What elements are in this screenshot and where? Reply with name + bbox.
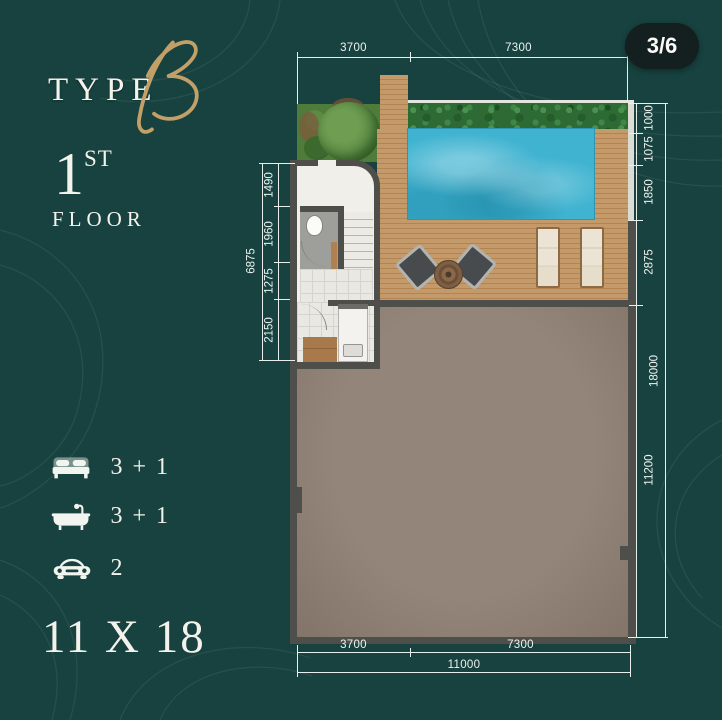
dim-tick (629, 220, 643, 221)
extension-line (630, 645, 631, 676)
dim-label-top-left: 3700 (297, 43, 410, 54)
wall-pillar (620, 546, 630, 560)
dim-tick (274, 262, 290, 263)
floorplan-page: 3700 7300 1000 1075 1850 2875 11200 1800… (0, 0, 722, 720)
dimension-line (297, 652, 631, 653)
extension-line (297, 645, 298, 676)
dimension-line (636, 103, 637, 637)
extension-line (297, 58, 298, 104)
dim-label-right-total: 18000 (650, 355, 661, 387)
dim-tick (629, 165, 643, 166)
type-letter-monogram (112, 32, 217, 142)
dim-label-bottom-left: 3700 (297, 640, 410, 651)
round-table (434, 260, 463, 289)
staircase (344, 212, 373, 269)
deck-floor-divider-wall (374, 300, 637, 307)
maid-room-wall (290, 362, 380, 369)
page-counter-text: 3/6 (647, 33, 678, 58)
bed-icon (50, 452, 92, 482)
dim-label-bottom-total: 11000 (297, 660, 631, 671)
plot-size-label: 11 X 18 (42, 610, 206, 664)
floor-word: FLOOR (52, 207, 146, 232)
dim-tick (259, 360, 295, 361)
dim-label-right-seg: 2875 (645, 249, 656, 275)
car-icon (50, 553, 94, 583)
dim-tick (274, 299, 290, 300)
maid-room-wall (374, 300, 380, 368)
hedge-row (408, 103, 628, 130)
parking-count: 2 (110, 555, 124, 581)
dim-label-top-right: 7300 (410, 43, 627, 54)
dim-tick (628, 637, 668, 638)
hallway-floor (300, 269, 373, 302)
dim-label-bottom-right: 7300 (410, 640, 631, 651)
floor-ordinal: ST (84, 146, 113, 171)
dim-label-left-seg: 2150 (265, 317, 276, 343)
page-counter-badge: 3/6 (625, 23, 699, 69)
dim-tick (259, 163, 295, 164)
entrance-walkway (380, 75, 408, 131)
dim-label-right-seg: 11200 (645, 454, 656, 485)
dim-label-right-seg: 1850 (645, 179, 656, 205)
wooden-sideboard (303, 337, 337, 362)
bathrooms-count: 3 + 1 (110, 503, 170, 529)
dim-label-left-seg: 1960 (265, 221, 276, 247)
entry-door-gap (318, 160, 336, 166)
extension-line (627, 58, 628, 101)
tree-icon (318, 102, 380, 162)
swimming-pool (407, 128, 595, 220)
sun-lounger (536, 227, 560, 288)
wall-pillar (290, 487, 302, 513)
floor-indicator: 1ST (54, 144, 113, 204)
amenity-parking: 2 (50, 553, 124, 583)
dimension-line (297, 57, 627, 58)
bed-headboard (338, 304, 368, 309)
dim-label-left-seg: 1490 (265, 172, 276, 198)
left-perimeter-wall (290, 160, 297, 644)
bed-pillow (343, 344, 363, 357)
dim-label-right-seg: 1075 (645, 136, 656, 162)
dim-label-right-seg: 1000 (645, 105, 656, 131)
dim-tick (629, 305, 643, 306)
bathroom-vanity (331, 242, 337, 269)
floor-number: 1 (54, 141, 84, 207)
dim-tick (274, 206, 290, 207)
amenity-bathrooms: 3 + 1 (50, 498, 170, 534)
dim-label-left-seg: 1275 (265, 268, 276, 294)
bedrooms-count: 3 + 1 (110, 454, 170, 480)
dim-tick (629, 133, 643, 134)
bathtub-icon (50, 498, 92, 534)
amenity-bedrooms: 3 + 1 (50, 452, 170, 482)
toilet-icon (306, 215, 323, 236)
dimension-line (297, 672, 631, 673)
right-perimeter-wall (628, 221, 636, 644)
sun-lounger (580, 227, 604, 288)
dimension-line (665, 103, 666, 637)
deck-right-edge (628, 103, 634, 221)
dim-tick (628, 103, 668, 104)
dim-label-left-total: 6875 (247, 248, 258, 274)
